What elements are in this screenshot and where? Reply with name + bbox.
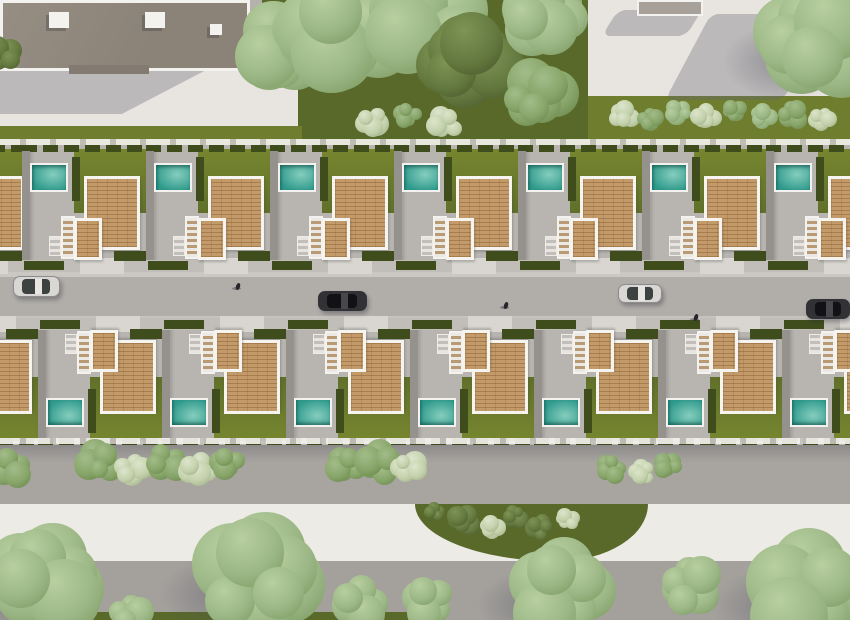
car bbox=[13, 276, 60, 297]
villa-side-wall bbox=[146, 151, 154, 263]
corner-hedge bbox=[238, 251, 270, 261]
villa-side-wall bbox=[658, 327, 666, 439]
front-hedge bbox=[784, 320, 824, 329]
shrub bbox=[427, 107, 461, 141]
canopy-lobe bbox=[654, 460, 672, 478]
entry-steps bbox=[793, 236, 805, 256]
lower-deck bbox=[446, 218, 474, 260]
canopy-lobe bbox=[117, 466, 134, 483]
tree bbox=[500, 64, 568, 132]
canopy-lobe bbox=[606, 466, 624, 484]
corner-hedge bbox=[254, 329, 286, 339]
entry-steps bbox=[173, 236, 185, 256]
villa-rear-hedge bbox=[642, 145, 766, 152]
pool-side-hedge bbox=[568, 157, 576, 201]
entry-steps bbox=[561, 334, 573, 354]
pool-side-hedge bbox=[444, 157, 452, 201]
villa-unit bbox=[286, 320, 410, 445]
shrub bbox=[502, 504, 526, 528]
entry-steps bbox=[545, 236, 557, 256]
deck-stairs bbox=[325, 331, 339, 374]
shrub bbox=[664, 99, 690, 125]
canopy-lobe bbox=[409, 577, 437, 605]
villa-side-wall bbox=[518, 151, 526, 263]
shrub bbox=[390, 451, 424, 485]
villa-unit bbox=[658, 320, 782, 445]
lower-deck bbox=[90, 330, 118, 372]
pool-side-hedge bbox=[584, 389, 592, 433]
deck-stairs bbox=[805, 216, 819, 259]
front-hedge bbox=[768, 261, 808, 270]
villa-side-wall bbox=[766, 151, 774, 263]
front-hedge bbox=[288, 320, 328, 329]
tree bbox=[106, 593, 150, 620]
shrub bbox=[722, 100, 746, 124]
pool-side-hedge bbox=[708, 389, 716, 433]
lower-deck bbox=[74, 218, 102, 260]
villa-unit bbox=[782, 320, 850, 445]
canopy-lobe bbox=[788, 100, 807, 119]
roof-deck bbox=[0, 176, 24, 250]
canopy-lobe bbox=[180, 456, 199, 475]
corner-hedge bbox=[734, 251, 766, 261]
entry-steps bbox=[189, 334, 201, 354]
pool-side-hedge bbox=[320, 157, 328, 201]
deck-stairs bbox=[573, 331, 587, 374]
canopy-lobe bbox=[482, 515, 499, 532]
villa-pool bbox=[526, 163, 564, 192]
tree bbox=[757, 0, 850, 97]
villa-side-wall bbox=[782, 327, 790, 439]
shrub bbox=[0, 37, 18, 73]
entry-steps bbox=[421, 236, 433, 256]
villa-rear-hedge bbox=[518, 145, 642, 152]
car bbox=[618, 284, 662, 303]
villa-pool bbox=[278, 163, 316, 192]
entry-steps bbox=[65, 334, 77, 354]
villa-pool bbox=[170, 398, 208, 427]
villa-pool bbox=[650, 163, 688, 192]
front-hedge bbox=[24, 261, 64, 270]
canopy-lobe bbox=[90, 460, 108, 478]
front-hedge bbox=[660, 320, 700, 329]
roof-vent bbox=[49, 12, 69, 28]
corner-hedge bbox=[626, 329, 658, 339]
shrub bbox=[479, 516, 503, 540]
tree bbox=[505, 0, 581, 58]
tree bbox=[747, 531, 850, 620]
canopy-lobe bbox=[540, 520, 552, 532]
roof-notch bbox=[69, 65, 149, 74]
entry-steps bbox=[809, 334, 821, 354]
canopy-lobe bbox=[527, 545, 576, 594]
shrub bbox=[393, 102, 421, 130]
villa-pool bbox=[774, 163, 812, 192]
tree bbox=[404, 575, 452, 620]
villa-side-wall bbox=[38, 327, 46, 439]
deck-stairs bbox=[61, 216, 75, 259]
corner-hedge bbox=[130, 329, 162, 339]
villa-rear-hedge bbox=[22, 145, 146, 152]
canopy-lobe bbox=[253, 567, 305, 619]
lower-deck bbox=[834, 330, 850, 372]
entry-steps bbox=[437, 334, 449, 354]
corner-hedge bbox=[502, 329, 534, 339]
canopy-lobe bbox=[358, 110, 373, 125]
front-hedge bbox=[272, 261, 312, 270]
roof-vent bbox=[145, 12, 165, 28]
boundary-wall bbox=[0, 139, 850, 145]
shrub bbox=[425, 503, 443, 521]
canopy-lobe bbox=[440, 12, 503, 75]
deck-stairs bbox=[697, 331, 711, 374]
villa-rear-hedge bbox=[766, 145, 850, 152]
lower-deck bbox=[710, 330, 738, 372]
canopy-lobe bbox=[820, 111, 837, 128]
shrub bbox=[595, 453, 625, 483]
canopy-lobe bbox=[146, 454, 166, 474]
lower-deck bbox=[462, 330, 490, 372]
canopy-lobe bbox=[333, 583, 363, 613]
pool-side-hedge bbox=[336, 389, 344, 433]
villa-unit bbox=[394, 145, 518, 270]
villa-rear-hedge bbox=[394, 145, 518, 152]
villa-side-wall bbox=[642, 151, 650, 263]
entry-steps bbox=[49, 236, 61, 256]
deck-stairs bbox=[433, 216, 447, 259]
villa-side-wall bbox=[270, 151, 278, 263]
shrub bbox=[628, 459, 654, 485]
corner-hedge bbox=[486, 251, 518, 261]
villa-side-wall bbox=[410, 327, 418, 439]
entry-steps bbox=[685, 334, 697, 354]
car bbox=[806, 299, 850, 319]
apartment-building-roof bbox=[0, 0, 250, 71]
shrub bbox=[637, 108, 661, 132]
corner-hedge bbox=[6, 329, 38, 339]
villa-unit bbox=[0, 320, 38, 445]
lower-deck bbox=[338, 330, 366, 372]
car-roof bbox=[638, 286, 645, 300]
tree bbox=[0, 524, 94, 620]
entry-steps bbox=[297, 236, 309, 256]
shrub bbox=[355, 105, 389, 139]
pool-side-hedge bbox=[196, 157, 204, 201]
driveway-apron bbox=[824, 258, 850, 274]
boundary-wall bbox=[0, 438, 850, 444]
tree bbox=[422, 20, 510, 108]
canopy-lobe bbox=[782, 26, 844, 88]
pool-side-hedge bbox=[212, 389, 220, 433]
villa-pool bbox=[666, 398, 704, 427]
corner-hedge bbox=[362, 251, 394, 261]
kiosk-roof bbox=[637, 0, 703, 16]
corner-hedge bbox=[378, 329, 410, 339]
pool-side-hedge bbox=[88, 389, 96, 433]
canopy-lobe bbox=[665, 107, 680, 122]
villa-side-wall bbox=[162, 327, 170, 439]
villa-unit bbox=[410, 320, 534, 445]
villa-unit bbox=[642, 145, 766, 270]
front-hedge bbox=[520, 261, 560, 270]
canopy-lobe bbox=[519, 93, 549, 123]
canopy-lobe bbox=[632, 467, 648, 483]
car bbox=[318, 291, 367, 311]
villa-unit bbox=[22, 145, 146, 270]
shrub bbox=[447, 505, 477, 535]
front-hedge bbox=[412, 320, 452, 329]
shrub bbox=[0, 448, 27, 486]
canopy-lobe bbox=[407, 461, 427, 481]
lower-deck bbox=[586, 330, 614, 372]
entry-steps bbox=[669, 236, 681, 256]
villa-side-wall bbox=[534, 327, 542, 439]
tree bbox=[657, 552, 719, 614]
car-roof bbox=[341, 293, 349, 308]
shrub bbox=[608, 102, 636, 130]
deck-stairs bbox=[557, 216, 571, 259]
pool-side-hedge bbox=[832, 389, 840, 433]
lower-deck bbox=[198, 218, 226, 260]
deck-stairs bbox=[201, 331, 215, 374]
villa-unit bbox=[146, 145, 270, 270]
tree bbox=[195, 516, 311, 620]
villa-pool bbox=[46, 398, 84, 427]
canopy-lobe bbox=[513, 507, 523, 517]
villa-pool bbox=[418, 398, 456, 427]
deck-stairs bbox=[77, 331, 91, 374]
road-asphalt bbox=[0, 277, 850, 318]
lower-deck bbox=[214, 330, 242, 372]
roof-vent bbox=[210, 24, 222, 35]
villa-unit bbox=[270, 145, 394, 270]
canopy-lobe bbox=[1, 50, 20, 69]
shrub bbox=[691, 104, 719, 132]
deck-stairs bbox=[681, 216, 695, 259]
lower-deck bbox=[570, 218, 598, 260]
aerial-site-render bbox=[0, 0, 850, 620]
villa-unit bbox=[518, 145, 642, 270]
deck-stairs bbox=[309, 216, 323, 259]
deck-stairs bbox=[449, 331, 463, 374]
canopy-lobe bbox=[4, 461, 31, 488]
shrub bbox=[809, 107, 833, 131]
canopy-lobe bbox=[668, 585, 698, 615]
villa-unit bbox=[766, 145, 850, 270]
car-roof bbox=[35, 279, 42, 295]
villa-rear-hedge bbox=[270, 145, 394, 152]
villa-pool bbox=[402, 163, 440, 192]
front-hedge bbox=[148, 261, 188, 270]
deck-stairs bbox=[185, 216, 199, 259]
villa-side-wall bbox=[394, 151, 402, 263]
villa-unit bbox=[534, 320, 658, 445]
pool-side-hedge bbox=[72, 157, 80, 201]
tree bbox=[508, 537, 608, 620]
deck-stairs bbox=[821, 331, 835, 374]
canopy-lobe bbox=[566, 518, 577, 529]
pool-side-hedge bbox=[816, 157, 824, 201]
shrub bbox=[749, 104, 775, 130]
entry-steps bbox=[313, 334, 325, 354]
canopy-lobe bbox=[680, 108, 691, 119]
corner-hedge bbox=[114, 251, 146, 261]
villa-rear-hedge bbox=[146, 145, 270, 152]
lower-deck bbox=[694, 218, 722, 260]
front-hedge bbox=[644, 261, 684, 270]
car-roof bbox=[826, 301, 833, 316]
front-hedge bbox=[164, 320, 204, 329]
villa-pool bbox=[154, 163, 192, 192]
pool-side-hedge bbox=[692, 157, 700, 201]
villa-unit bbox=[38, 320, 162, 445]
canopy-lobe bbox=[754, 103, 771, 120]
shrub bbox=[653, 452, 681, 480]
front-hedge bbox=[40, 320, 80, 329]
canopy-lobe bbox=[447, 506, 468, 527]
villa-pool bbox=[790, 398, 828, 427]
pool-side-hedge bbox=[460, 389, 468, 433]
shrub bbox=[210, 447, 244, 481]
corner-hedge bbox=[750, 329, 782, 339]
villa-pool bbox=[294, 398, 332, 427]
corner-hedge bbox=[610, 251, 642, 261]
villa-pool bbox=[542, 398, 580, 427]
front-hedge bbox=[536, 320, 576, 329]
lower-deck bbox=[322, 218, 350, 260]
tree bbox=[331, 574, 385, 620]
villa-side-wall bbox=[22, 151, 30, 263]
roof-deck bbox=[0, 340, 32, 414]
villa-unit bbox=[162, 320, 286, 445]
villa-pool bbox=[30, 163, 68, 192]
villa-side-wall bbox=[286, 327, 294, 439]
shrub bbox=[777, 100, 805, 128]
shrub bbox=[554, 508, 578, 532]
lower-deck bbox=[818, 218, 846, 260]
front-hedge bbox=[396, 261, 436, 270]
